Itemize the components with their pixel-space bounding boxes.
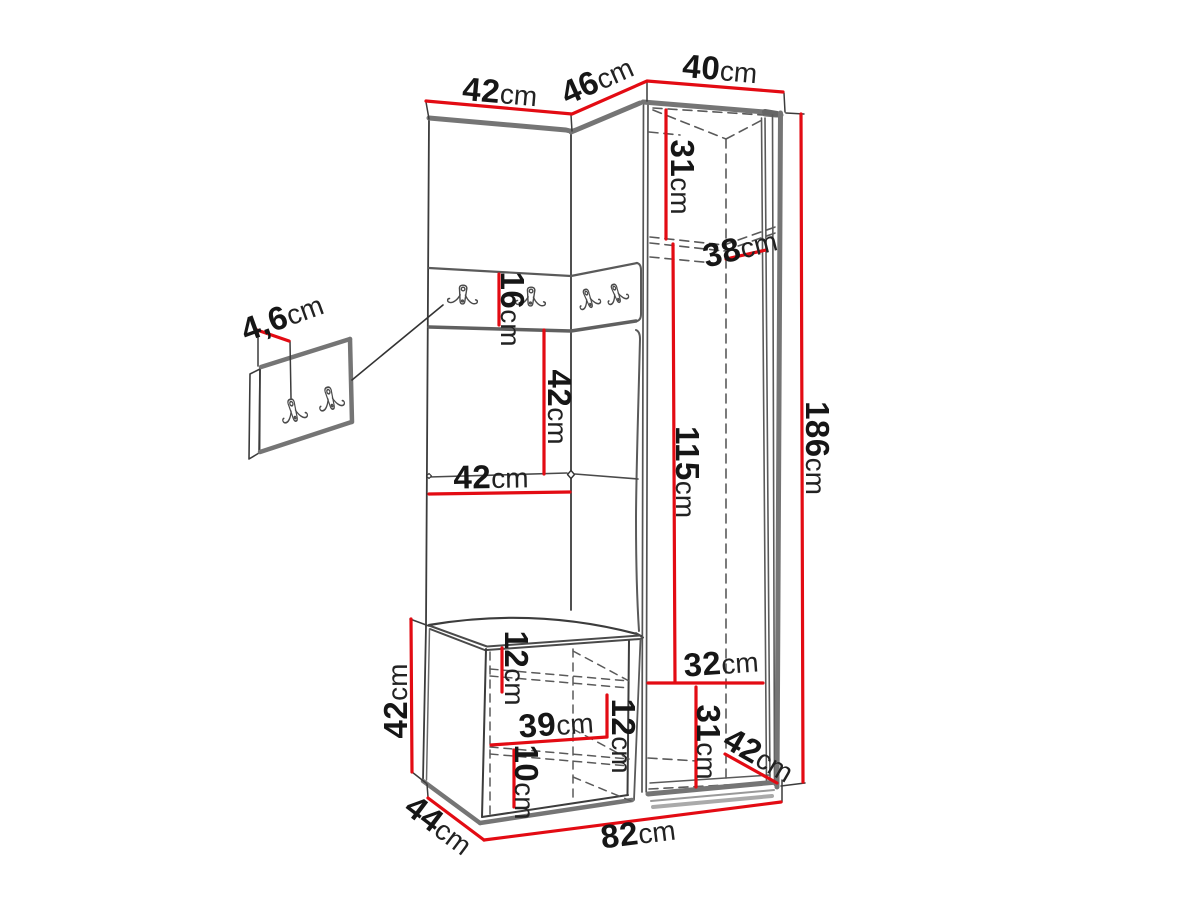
svg-text:115cm: 115cm xyxy=(669,426,706,518)
svg-text:82cm: 82cm xyxy=(598,810,677,856)
svg-text:186cm: 186cm xyxy=(799,401,836,495)
svg-text:39cm: 39cm xyxy=(517,702,594,744)
svg-text:44cm: 44cm xyxy=(398,787,480,862)
svg-text:42cm: 42cm xyxy=(461,70,539,113)
svg-text:12cm: 12cm xyxy=(605,698,642,773)
svg-text:42cm: 42cm xyxy=(541,369,578,444)
svg-text:40cm: 40cm xyxy=(681,47,759,90)
svg-text:10cm: 10cm xyxy=(508,744,545,819)
svg-text:12cm: 12cm xyxy=(498,630,535,705)
svg-text:16cm: 16cm xyxy=(494,271,531,346)
svg-text:42cm: 42cm xyxy=(453,457,529,495)
svg-text:31cm: 31cm xyxy=(690,704,727,779)
svg-text:32cm: 32cm xyxy=(682,641,759,683)
svg-text:38cm: 38cm xyxy=(699,220,781,274)
svg-text:31cm: 31cm xyxy=(664,139,701,214)
svg-text:42cm: 42cm xyxy=(377,663,414,738)
svg-text:42cm: 42cm xyxy=(718,720,801,790)
